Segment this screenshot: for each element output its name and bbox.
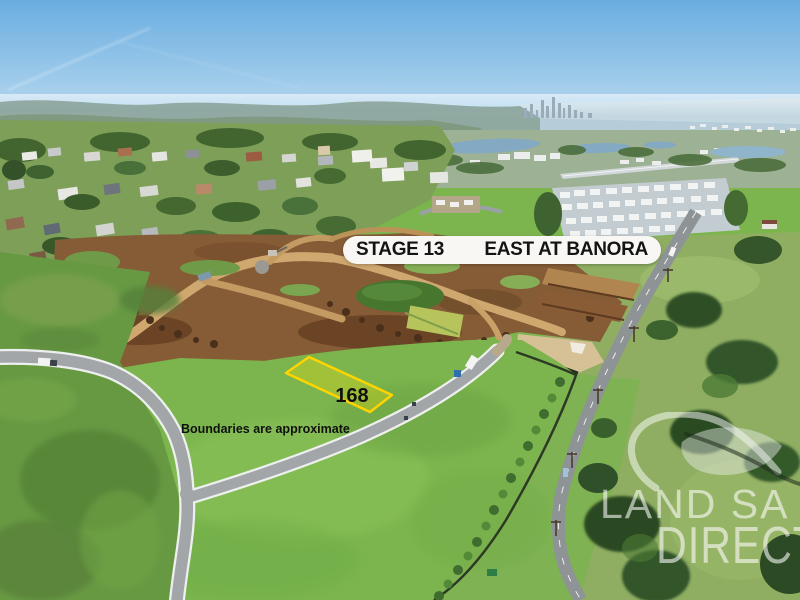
aerial-photo-listing: STAGE 13 EAST AT BANORA 168 Boundaries a… [0, 0, 800, 600]
boundaries-disclaimer: Boundaries are approximate [181, 422, 361, 436]
car-blue [563, 468, 568, 477]
parked-ute [38, 358, 51, 366]
road-sign-green [487, 569, 497, 576]
portable-toilet [454, 370, 461, 377]
banner-stage-label: STAGE 13 [356, 239, 444, 261]
lot-168-label: 168 [327, 385, 377, 408]
stage-banner: STAGE 13 EAST AT BANORA [343, 236, 661, 264]
banner-estate-label: EAST AT BANORA [484, 239, 648, 261]
aerial-photo [0, 0, 800, 600]
new-estate [534, 178, 748, 242]
